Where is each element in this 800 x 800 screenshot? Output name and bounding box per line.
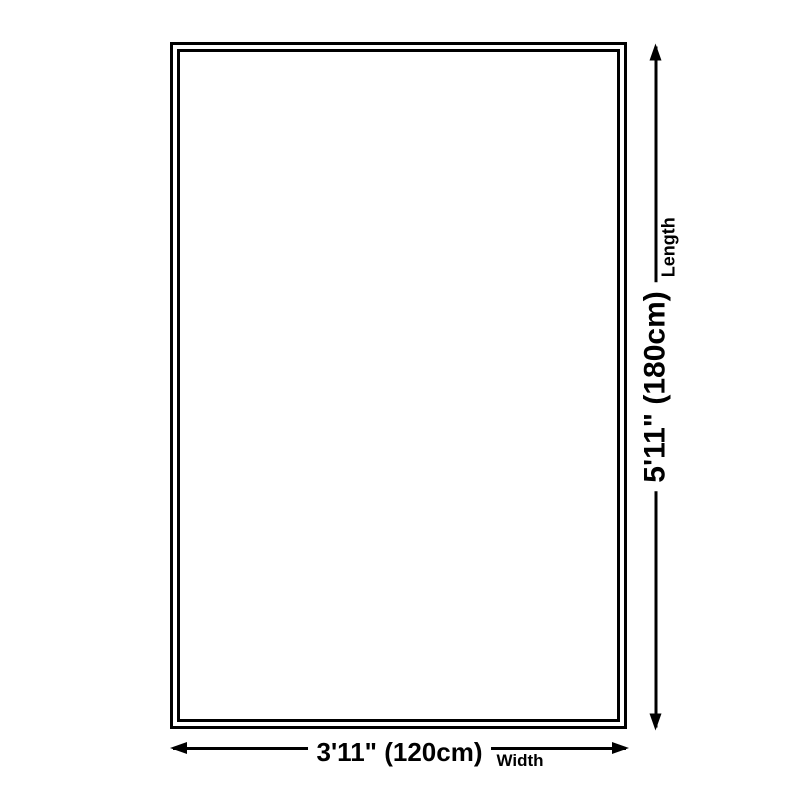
- arrow-right-icon: [612, 742, 629, 754]
- length-value-wrap: 5'11" (180cm) Length: [638, 282, 673, 491]
- length-dimension: 5'11" (180cm) Length: [630, 43, 682, 730]
- width-value: 3'11" (120cm): [317, 737, 483, 767]
- rug-outline: [170, 42, 627, 729]
- arrow-up-icon: [650, 713, 662, 730]
- rug-inner-border: [177, 49, 620, 722]
- rug-size-diagram: 3'11" (120cm) Width 5'11" (180cm) Length: [0, 0, 800, 800]
- width-label: Width: [496, 752, 543, 769]
- arrow-left-icon: [170, 742, 187, 754]
- width-dimension: 3'11" (120cm) Width: [170, 722, 629, 774]
- length-value: 5'11" (180cm): [638, 291, 671, 482]
- length-label: Length: [660, 217, 678, 277]
- arrow-down-icon: [650, 43, 662, 60]
- width-value-wrap: 3'11" (120cm) Width: [308, 738, 492, 768]
